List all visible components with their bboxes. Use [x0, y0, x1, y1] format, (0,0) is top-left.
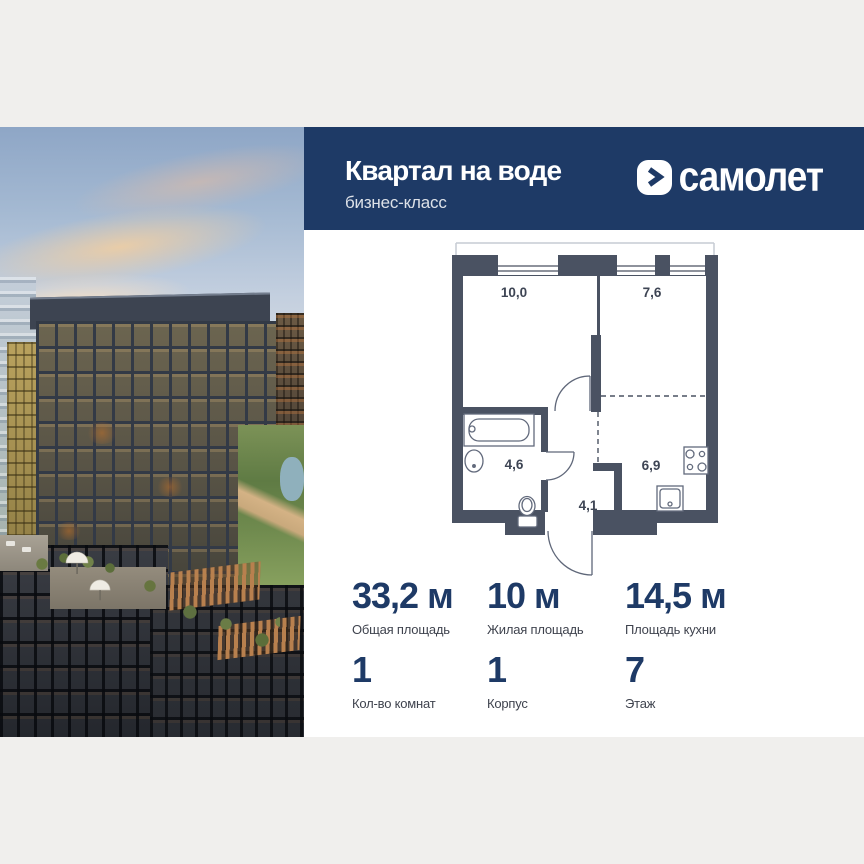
photo-lounge-furniture [6, 541, 15, 546]
stat-value: 1 [352, 652, 487, 688]
stat-value: 14,5 м [625, 578, 864, 614]
stat-label: Площадь кухни [625, 622, 864, 638]
stat-value: 1 [487, 652, 625, 688]
content-band: Квартал на воде бизнес-класс самолет [0, 127, 864, 737]
project-title: Квартал на воде [345, 155, 561, 187]
stat-kitchen-area: 14,5 м Площадь кухни [625, 578, 864, 638]
stat-label: Жилая площадь [487, 622, 625, 638]
room-area-label: 4,1 [579, 498, 598, 513]
floor-plan: 10,0 7,6 4,6 4,1 6,9 [440, 235, 720, 590]
photo-window-glow [155, 477, 185, 497]
sink-icon [465, 450, 483, 472]
stat-value: 10 м [487, 578, 625, 614]
stat-building: 1 Корпус [487, 652, 625, 712]
balcony-outline [456, 243, 714, 255]
umbrella-icon [64, 551, 90, 577]
info-panel: Квартал на воде бизнес-класс самолет [304, 127, 864, 737]
samolet-logo: самолет [637, 156, 823, 198]
photo-pond [280, 457, 304, 501]
listing-card: Квартал на воде бизнес-класс самолет [0, 0, 864, 864]
stat-label: Кол-во комнат [352, 696, 487, 712]
bathtub-icon [464, 414, 534, 446]
umbrella-icon [88, 579, 112, 603]
building-photo [0, 127, 304, 737]
stat-value: 33,2 м [352, 578, 487, 614]
stat-rooms-count: 1 Кол-во комнат [352, 652, 487, 712]
room-area-label: 4,6 [505, 457, 524, 472]
apartment-stats: 33,2 м Общая площадь 10 м Жилая площадь … [304, 578, 864, 713]
room-area-label: 6,9 [642, 458, 661, 473]
stat-total-area: 33,2 м Общая площадь [352, 578, 487, 638]
kitchen-sink-icon [657, 486, 683, 511]
photo-window-glow [85, 422, 119, 444]
project-header: Квартал на воде бизнес-класс самолет [304, 127, 864, 230]
room-area-label: 7,6 [643, 285, 662, 300]
room-area-label: 10,0 [501, 285, 527, 300]
stat-floor: 7 Этаж [625, 652, 864, 712]
stat-living-area: 10 м Жилая площадь [487, 578, 625, 638]
samolet-logo-text: самолет [679, 153, 823, 200]
photo-window-glow [55, 522, 83, 540]
project-class-label: бизнес-класс [345, 193, 447, 213]
chevron-right-icon [637, 160, 672, 195]
stat-label: Этаж [625, 696, 864, 712]
stat-label: Корпус [487, 696, 625, 712]
door-swing-icon [546, 376, 592, 575]
stat-value: 7 [625, 652, 864, 688]
stove-icon [684, 447, 708, 474]
stat-label: Общая площадь [352, 622, 487, 638]
